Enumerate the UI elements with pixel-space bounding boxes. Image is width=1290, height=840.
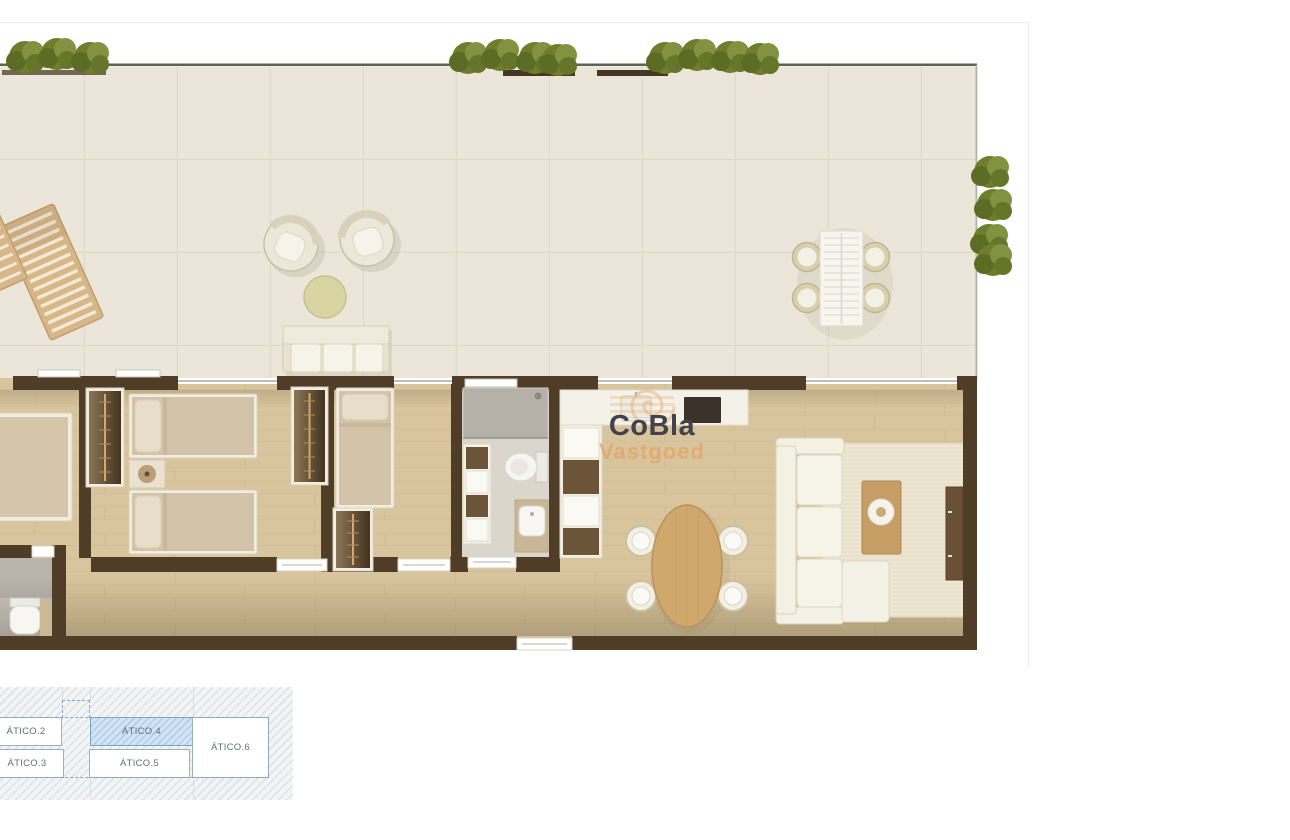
keyplan-guide-line: [90, 687, 91, 701]
terrace-right-edge: [976, 65, 978, 380]
wardrobe: [291, 387, 328, 485]
nightstand: [129, 460, 165, 488]
kitchen-shelving: [560, 425, 602, 558]
keyplan-unit-atico-5[interactable]: ÁTICO.5: [89, 749, 190, 778]
keyplan-dashed-notch: [62, 700, 90, 718]
keyplan-guide-line: [193, 687, 194, 717]
wardrobe: [333, 508, 373, 571]
dining-chair: [718, 526, 748, 556]
outdoor-chair: [861, 284, 890, 313]
keyplan-unit-atico-3[interactable]: ÁTICO.3: [0, 749, 64, 778]
outdoor-chair: [793, 243, 822, 272]
keyplan-unit-atico-6[interactable]: ÁTICO.6: [192, 717, 269, 778]
single-bed: [129, 394, 257, 458]
hedge-planter: [6, 38, 109, 74]
keyplan-unit-atico-2[interactable]: ÁTICO.2: [0, 717, 62, 746]
terrace: [0, 38, 1012, 380]
shower: [463, 388, 548, 438]
toilet: [10, 598, 40, 634]
round-side-table: [304, 276, 346, 318]
dining-chair: [626, 526, 656, 556]
bathroom-shelves: [463, 444, 491, 544]
dining-chair: [718, 581, 748, 611]
living-room: [776, 438, 964, 624]
keyplan-guide-line: [90, 778, 91, 798]
cooktop: [684, 397, 721, 423]
keyplan-guide-line: [193, 778, 194, 798]
washbasin-counter: [40, 600, 52, 636]
single-bed: [336, 388, 394, 508]
sink: [621, 396, 651, 421]
keyplan-unit-atico-4-highlighted[interactable]: ÁTICO.4: [90, 717, 193, 746]
bedroom-1: [0, 413, 72, 521]
guest-wc: [10, 598, 52, 636]
entrance-door: [517, 638, 572, 650]
tv-sideboard: [946, 487, 963, 580]
washbasin: [515, 500, 548, 552]
keyplan: ÁTICO.2 ÁTICO.3 ÁTICO.4 ÁTICO.5 ÁTICO.6: [0, 687, 293, 800]
toilet: [505, 452, 548, 482]
wardrobe: [86, 388, 124, 487]
floor-plan: [0, 0, 1028, 668]
outdoor-chair: [861, 243, 890, 272]
keyplan-guide-line: [62, 687, 63, 701]
outdoor-sofa: [283, 326, 392, 376]
outdoor-chair: [793, 284, 822, 313]
single-bed: [129, 490, 257, 554]
coffee-table: [862, 481, 901, 554]
plan-canvas-right-edge: [1028, 22, 1029, 668]
dining-chair: [626, 581, 656, 611]
